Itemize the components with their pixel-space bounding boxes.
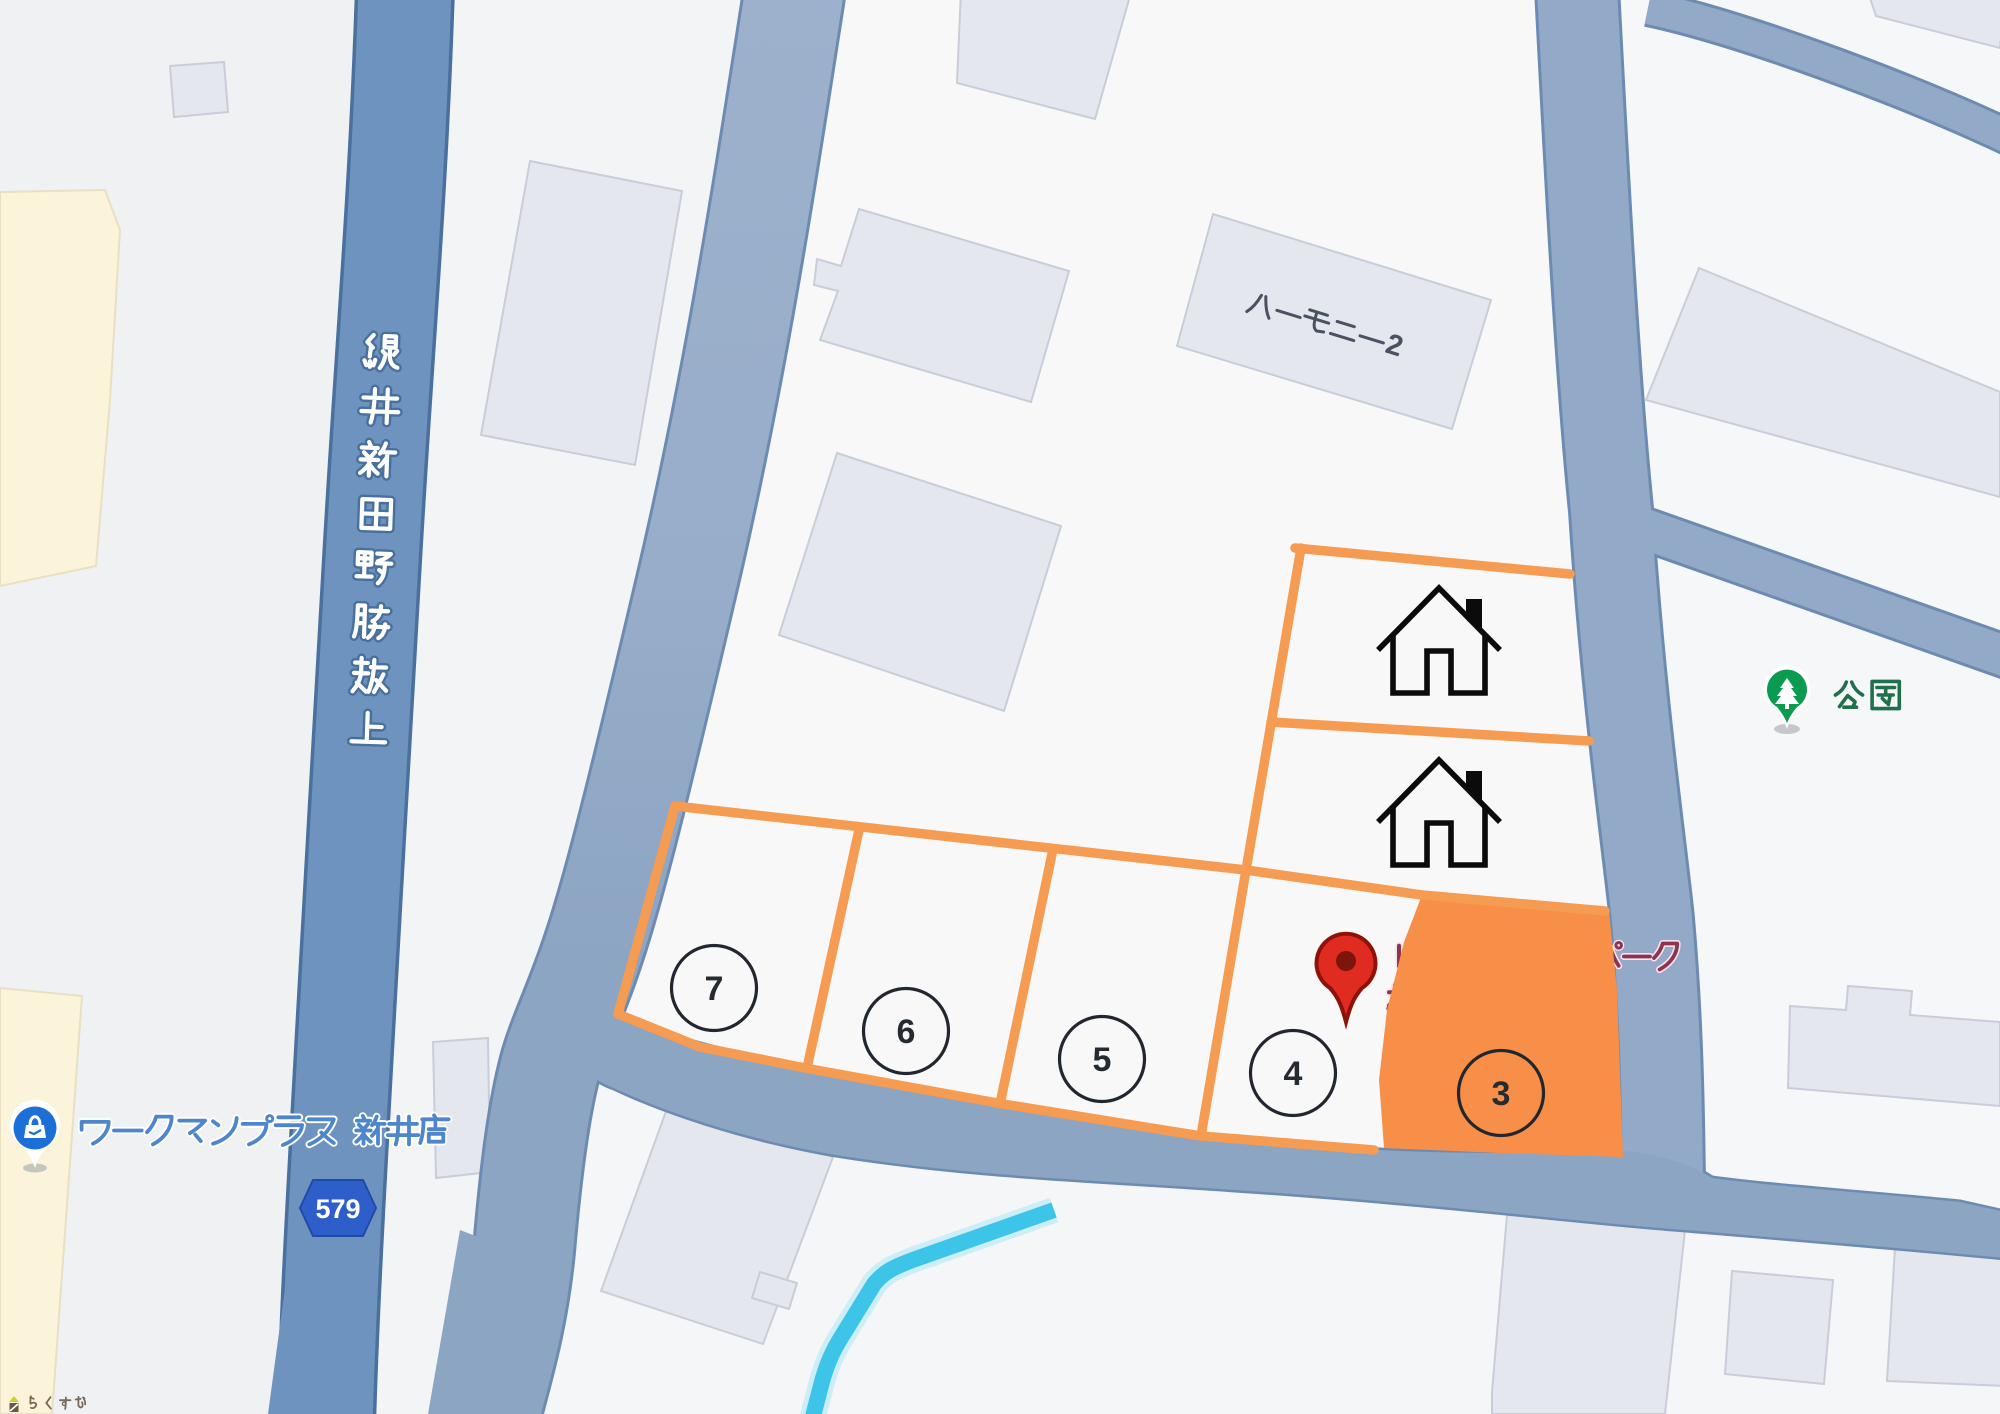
svg-text:6: 6 [897, 1013, 916, 1051]
svg-text:5: 5 [1093, 1041, 1112, 1079]
svg-text:3: 3 [1492, 1075, 1511, 1113]
svg-text:579: 579 [315, 1194, 360, 1224]
svg-text:4: 4 [1284, 1055, 1303, 1093]
svg-text:7: 7 [705, 970, 724, 1008]
